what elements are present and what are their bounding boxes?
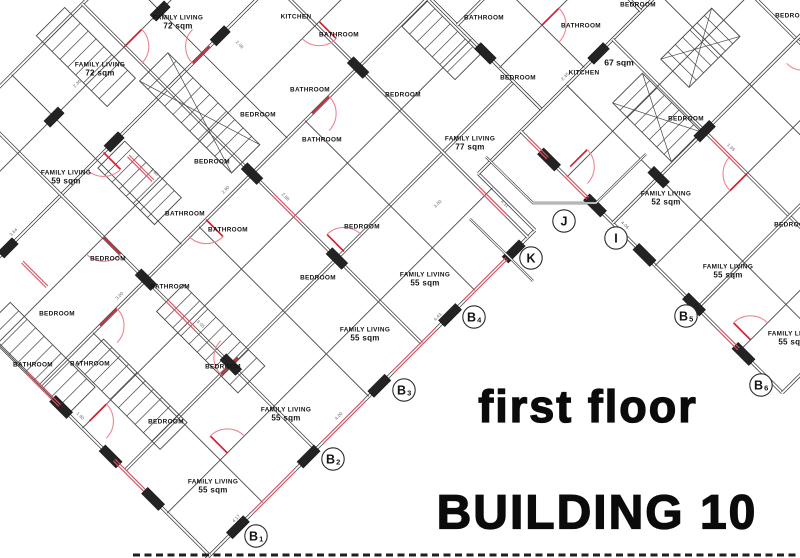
dimension-label: 2.98 bbox=[281, 192, 291, 202]
dimension-label: 3.64 bbox=[8, 227, 18, 237]
room-area-label: 77 sqm bbox=[455, 143, 484, 152]
room-label: BEDROOM bbox=[500, 75, 536, 82]
grid-marker-letter: B bbox=[467, 310, 476, 324]
partition-wall bbox=[659, 0, 800, 255]
stair-tread bbox=[620, 81, 650, 111]
staircase bbox=[77, 339, 187, 449]
column-block bbox=[537, 148, 560, 171]
grid-marker-letter: B bbox=[249, 529, 258, 543]
room-label: BATHROOM bbox=[319, 32, 359, 39]
room-area-label: 52 sqm bbox=[651, 198, 680, 207]
room-label: FAMILY LIVING bbox=[188, 479, 238, 486]
grid-marker: B3 bbox=[393, 379, 415, 401]
stair-tread bbox=[110, 372, 137, 399]
window-line bbox=[465, 259, 507, 301]
door-leaf bbox=[104, 152, 121, 169]
window-line bbox=[127, 157, 152, 182]
room-label: BEDROOM bbox=[90, 256, 126, 263]
room-label: FAMILY LIVING bbox=[400, 272, 450, 279]
partition-wall bbox=[500, 0, 585, 68]
room-label: KITCHEN bbox=[281, 14, 312, 21]
room-label: BEDROOM bbox=[385, 92, 421, 99]
room-label: BEDROOM bbox=[668, 116, 704, 123]
room-area-label: 55 sqm bbox=[198, 486, 227, 495]
room-label: BATHROOM bbox=[70, 361, 110, 368]
room-label: FAMILY LIVING bbox=[641, 191, 691, 198]
grid-marker-letter: B bbox=[397, 383, 406, 397]
dimension-label: 3.00 bbox=[433, 198, 443, 208]
floor-plan-page: 3.002.904.174.004.431.903.052.984.114.06… bbox=[0, 0, 800, 558]
screen-layer: FAMILY LIVING72 sqmFAMILY LIVING72 sqmFA… bbox=[13, 2, 800, 556]
grid-marker-subscript: 6 bbox=[764, 384, 768, 393]
room-area-label: 55 sqm bbox=[271, 414, 300, 423]
wall-core bbox=[613, 39, 800, 301]
door-leaf bbox=[125, 29, 142, 46]
window-line bbox=[564, 176, 587, 199]
room-label: BATHROOM bbox=[302, 137, 342, 144]
dimension-label: 4.11 bbox=[500, 199, 510, 209]
column-block bbox=[474, 42, 496, 64]
room-label: BEDROOM bbox=[205, 364, 241, 371]
grid-marker: B2 bbox=[322, 448, 344, 470]
door-leaf bbox=[210, 436, 227, 453]
room-area-label: 72 sqm bbox=[85, 69, 114, 78]
door-leaf bbox=[100, 309, 117, 326]
wall-core bbox=[0, 216, 210, 555]
door-leaf bbox=[570, 150, 587, 167]
room-area-label: 72 sqm bbox=[163, 22, 192, 31]
room-label: FAMILY LIVING bbox=[768, 331, 800, 338]
room-label: FAMILY LIVING bbox=[153, 15, 203, 22]
grid-marker: B5 bbox=[675, 305, 697, 327]
dimension-label: 2.90 bbox=[221, 184, 231, 194]
room-label: FAMILY LIVING bbox=[340, 327, 390, 334]
room-area-label: 55 sqm bbox=[713, 271, 742, 280]
grid-marker-letter: B bbox=[326, 452, 335, 466]
stair-tread bbox=[133, 176, 160, 203]
staircase bbox=[661, 8, 740, 87]
door-leaf bbox=[542, 8, 559, 25]
grid-marker-subscript: 1 bbox=[259, 535, 263, 544]
column-block bbox=[104, 132, 125, 153]
stair-tread bbox=[635, 95, 665, 125]
stair-outline bbox=[36, 7, 135, 106]
grid-marker-letter: J bbox=[561, 214, 568, 228]
dimension-label: 1.90 bbox=[76, 411, 86, 421]
plan-drawing: 3.002.904.174.004.431.903.052.984.114.06… bbox=[0, 0, 800, 558]
grid-marker-subscript: 3 bbox=[407, 389, 411, 398]
window-line bbox=[463, 258, 505, 300]
floor-title: first floor bbox=[478, 381, 698, 433]
column-block bbox=[49, 395, 72, 418]
dimension-label: 3.05 bbox=[196, 319, 206, 329]
room-area-label: 59 sqm bbox=[51, 177, 80, 186]
stair-tread bbox=[112, 155, 139, 182]
window-line bbox=[129, 155, 154, 180]
door-swing-arc bbox=[100, 309, 134, 343]
column-block bbox=[210, 26, 231, 47]
stair-tread bbox=[60, 31, 88, 59]
window-line bbox=[322, 399, 364, 441]
window-line bbox=[23, 261, 48, 286]
stair-tread bbox=[425, 24, 450, 49]
building-title: BUILDING 10 bbox=[437, 486, 758, 541]
grid-marker: B4 bbox=[463, 306, 485, 328]
wall bbox=[613, 39, 800, 301]
stair-tread bbox=[44, 15, 72, 43]
door-swing-arc bbox=[787, 46, 800, 80]
dimension-label: 3.00 bbox=[114, 290, 124, 300]
room-label: BEDROOM bbox=[344, 224, 380, 231]
window-line bbox=[168, 300, 196, 328]
wall-core bbox=[0, 110, 316, 449]
room-label: FAMILY LIVING bbox=[703, 264, 753, 271]
stair-tread bbox=[119, 162, 146, 189]
door-leaf bbox=[730, 174, 747, 191]
door-swing-arc bbox=[312, 97, 346, 131]
door-swing-arc bbox=[713, 157, 747, 191]
room-label: BATHROOM bbox=[464, 15, 504, 22]
room-label: BEDROOM bbox=[240, 112, 276, 119]
room-label: BATHROOM bbox=[561, 23, 601, 30]
window-line bbox=[21, 263, 46, 288]
room-label: BEDROOM bbox=[620, 2, 656, 9]
door-leaf bbox=[104, 237, 121, 254]
door-swing-arc bbox=[189, 220, 223, 254]
door-leaf bbox=[89, 404, 106, 421]
stair-tread bbox=[627, 88, 657, 118]
wall bbox=[0, 216, 210, 555]
door-leaf bbox=[734, 323, 751, 340]
stair-tread bbox=[9, 328, 36, 355]
window-line bbox=[324, 401, 366, 443]
door-swing-arc bbox=[210, 419, 244, 453]
column-block bbox=[99, 445, 122, 468]
window-line bbox=[251, 470, 293, 512]
stair-tread bbox=[197, 325, 224, 352]
dimension-label: 4.00 bbox=[334, 411, 344, 421]
wall bbox=[0, 110, 316, 449]
stair-tread bbox=[440, 39, 465, 64]
room-label: BEDROOM bbox=[39, 311, 75, 318]
door-swing-arc bbox=[87, 237, 121, 271]
stair-tread bbox=[17, 336, 44, 363]
grid-marker-letter: I bbox=[614, 231, 617, 245]
door-swing-arc bbox=[87, 152, 121, 186]
stair-tread bbox=[649, 110, 679, 140]
wall bbox=[0, 0, 344, 527]
grid-marker: B1 bbox=[245, 525, 267, 547]
column-block bbox=[732, 342, 755, 365]
room-label: BEDROOM bbox=[775, 13, 800, 20]
grid-marker-letter: K bbox=[526, 251, 535, 265]
wall-core bbox=[478, 0, 782, 174]
stair-tread bbox=[675, 45, 703, 73]
room-label: BEDROOM bbox=[148, 419, 184, 426]
room-label: BEDROOM bbox=[300, 275, 336, 282]
window-line bbox=[718, 330, 738, 350]
stair-tread bbox=[60, 379, 87, 406]
door-swing-arc bbox=[176, 29, 210, 63]
column-block bbox=[141, 487, 164, 510]
room-label: BEDROOM bbox=[194, 159, 230, 166]
door-swing-arc bbox=[734, 306, 768, 340]
stair-tread bbox=[0, 311, 19, 338]
wall bbox=[782, 202, 800, 393]
stair-tread bbox=[52, 23, 80, 51]
staircase bbox=[157, 285, 265, 393]
wall bbox=[478, 0, 782, 174]
room-area-label: 55 sqm bbox=[410, 279, 439, 288]
room-label: KITCHEN bbox=[569, 70, 600, 77]
window-line bbox=[720, 328, 740, 348]
room-label: FAMILY LIVING bbox=[445, 136, 495, 143]
stair-tread bbox=[51, 370, 78, 397]
stair-tread bbox=[0, 319, 27, 346]
room-label: BATHROOM bbox=[13, 362, 53, 369]
dimension-label: 1.80 bbox=[150, 167, 160, 177]
window-line bbox=[565, 174, 588, 197]
grid-marker: J bbox=[553, 210, 575, 232]
room-label: 67 sqm bbox=[604, 58, 634, 68]
door-leaf bbox=[312, 97, 329, 114]
stair-tread bbox=[127, 389, 154, 416]
room-area-label: 55 sqm bbox=[350, 334, 379, 343]
stair-tread bbox=[417, 16, 442, 41]
stair-tread bbox=[432, 31, 457, 56]
grid-marker-letter: B bbox=[754, 378, 763, 392]
door-leaf bbox=[193, 46, 210, 63]
door-swing-arc bbox=[125, 29, 159, 63]
door-swing-arc bbox=[89, 404, 123, 438]
room-label: BATHROOM bbox=[290, 87, 330, 94]
stair-tread bbox=[102, 364, 129, 391]
dimension-label: 1.35 bbox=[726, 142, 736, 152]
column-block bbox=[297, 445, 320, 468]
window-line bbox=[253, 471, 295, 513]
stair-tread bbox=[697, 23, 725, 51]
room-label: FAMILY LIVING bbox=[41, 170, 91, 177]
grid-marker: I bbox=[605, 227, 627, 249]
column-block bbox=[368, 374, 391, 397]
stair-tread bbox=[118, 381, 145, 408]
door-swing-arc bbox=[570, 150, 604, 184]
column-block bbox=[633, 243, 656, 266]
room-label: BATHROOM bbox=[150, 284, 190, 291]
wall-core bbox=[782, 202, 800, 393]
stair-tread bbox=[165, 293, 192, 320]
grid-marker: K bbox=[520, 247, 542, 269]
room-label: FAMILY LIVING bbox=[261, 407, 311, 414]
stair-tread bbox=[664, 125, 694, 155]
staircase bbox=[36, 7, 135, 106]
room-label: BATHROOM bbox=[208, 227, 248, 234]
grid-marker-subscript: 2 bbox=[336, 458, 340, 467]
grid-marker-letter: B bbox=[679, 309, 688, 323]
rotated-plan-layer: 3.002.904.174.004.431.903.052.984.114.06… bbox=[0, 0, 800, 558]
dimension-label: 2.06 bbox=[235, 40, 245, 50]
room-label: BATHROOM bbox=[165, 211, 205, 218]
grid-marker-subscript: 5 bbox=[689, 315, 693, 324]
wall-core bbox=[0, 0, 344, 527]
room-area-label: 55 sqm bbox=[778, 338, 800, 347]
room-label: BEDROOM bbox=[774, 222, 800, 229]
grid-marker: B6 bbox=[750, 374, 772, 396]
room-label: FAMILY LIVING bbox=[75, 62, 125, 69]
